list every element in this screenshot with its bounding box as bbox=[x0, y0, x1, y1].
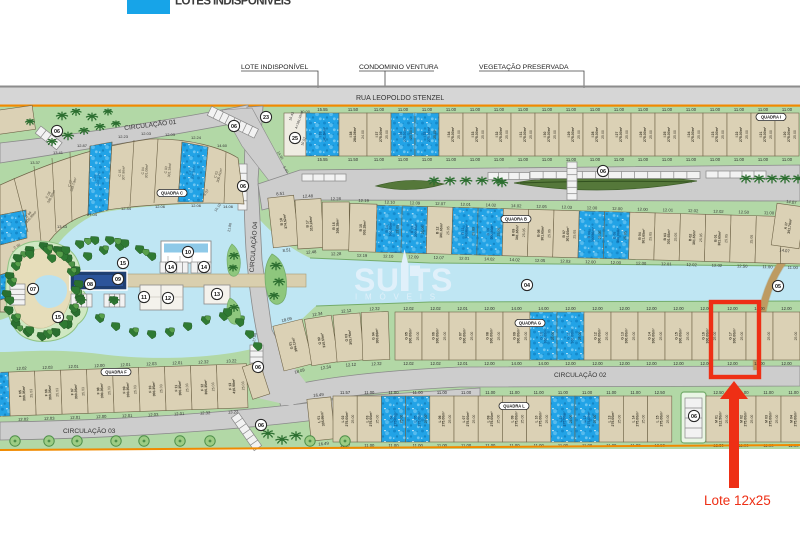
svg-text:25.05: 25.05 bbox=[446, 226, 450, 235]
svg-text:25.00: 25.00 bbox=[577, 130, 581, 139]
svg-text:CIRCULAÇÃO 03: CIRCULAÇÃO 03 bbox=[63, 426, 116, 435]
svg-text:12.02: 12.02 bbox=[18, 417, 29, 422]
svg-text:11.57: 11.57 bbox=[340, 390, 351, 395]
svg-text:11.00: 11.00 bbox=[374, 157, 385, 162]
svg-text:25.00: 25.00 bbox=[745, 130, 749, 139]
svg-text:11.00: 11.00 bbox=[788, 265, 799, 270]
svg-text:8.51: 8.51 bbox=[276, 190, 285, 196]
svg-text:25.03: 25.03 bbox=[55, 388, 59, 397]
svg-text:11.00: 11.00 bbox=[638, 107, 649, 112]
svg-text:11.00: 11.00 bbox=[606, 390, 617, 395]
svg-text:11.00: 11.00 bbox=[614, 157, 625, 162]
svg-text:12.00: 12.00 bbox=[781, 361, 792, 366]
svg-text:27.04: 27.04 bbox=[87, 212, 98, 217]
svg-text:12.50: 12.50 bbox=[738, 209, 749, 214]
svg-text:12.01: 12.01 bbox=[460, 202, 471, 207]
svg-text:25.00: 25.00 bbox=[433, 130, 437, 139]
svg-text:25.00: 25.00 bbox=[725, 415, 729, 424]
svg-text:12.32: 12.32 bbox=[369, 306, 380, 311]
svg-text:25: 25 bbox=[292, 136, 298, 142]
svg-text:25.00: 25.00 bbox=[740, 332, 744, 341]
svg-text:13.22: 13.22 bbox=[226, 358, 237, 363]
svg-text:12.00: 12.00 bbox=[673, 306, 684, 311]
svg-text:12.02: 12.02 bbox=[712, 263, 723, 268]
svg-text:11.00: 11.00 bbox=[485, 390, 496, 395]
svg-text:25.00: 25.00 bbox=[697, 130, 701, 139]
svg-text:QUADRA L: QUADRA L bbox=[503, 404, 525, 409]
svg-text:11.00: 11.00 bbox=[446, 157, 457, 162]
svg-text:12.28: 12.28 bbox=[331, 251, 342, 256]
svg-text:14.00: 14.00 bbox=[538, 306, 549, 311]
svg-text:11.00: 11.00 bbox=[758, 157, 769, 162]
svg-text:06: 06 bbox=[258, 423, 264, 429]
svg-text:13.37: 13.37 bbox=[30, 160, 41, 165]
svg-text:25.05: 25.05 bbox=[547, 229, 551, 238]
svg-text:14: 14 bbox=[168, 265, 174, 271]
svg-text:23: 23 bbox=[263, 115, 269, 121]
svg-text:25.03: 25.03 bbox=[133, 385, 137, 394]
svg-text:25.00: 25.00 bbox=[457, 130, 461, 139]
svg-text:11.00: 11.00 bbox=[686, 107, 697, 112]
svg-text:25.05: 25.05 bbox=[750, 235, 754, 244]
svg-text:25.00: 25.00 bbox=[673, 130, 677, 139]
svg-text:12.00: 12.00 bbox=[619, 361, 630, 366]
svg-text:13.43: 13.43 bbox=[57, 224, 68, 229]
svg-text:14.00: 14.00 bbox=[511, 361, 522, 366]
svg-text:06: 06 bbox=[54, 129, 60, 135]
svg-text:11.00: 11.00 bbox=[518, 157, 529, 162]
svg-text:12.00: 12.00 bbox=[727, 361, 738, 366]
svg-text:06: 06 bbox=[255, 365, 261, 371]
svg-text:12.48: 12.48 bbox=[302, 193, 313, 199]
svg-text:14.02: 14.02 bbox=[486, 202, 497, 207]
svg-text:11.00: 11.00 bbox=[782, 107, 793, 112]
svg-text:12.03: 12.03 bbox=[561, 205, 572, 210]
svg-text:12.00: 12.00 bbox=[610, 260, 621, 265]
svg-text:25.00: 25.00 bbox=[529, 130, 533, 139]
svg-text:12.00: 12.00 bbox=[484, 306, 495, 311]
svg-text:25.00: 25.00 bbox=[521, 415, 525, 424]
svg-text:12.01: 12.01 bbox=[663, 207, 674, 212]
svg-text:25.00: 25.00 bbox=[605, 332, 609, 341]
svg-text:25.00: 25.00 bbox=[666, 415, 670, 424]
svg-text:12.00: 12.00 bbox=[612, 206, 623, 211]
svg-text:11.00: 11.00 bbox=[413, 390, 424, 395]
svg-text:25.05: 25.05 bbox=[573, 230, 577, 239]
svg-text:25.00: 25.00 bbox=[443, 332, 447, 341]
svg-text:25.03: 25.03 bbox=[159, 384, 163, 393]
svg-text:13.41: 13.41 bbox=[53, 150, 64, 155]
svg-text:11.00: 11.00 bbox=[422, 107, 433, 112]
svg-text:12.00: 12.00 bbox=[619, 306, 630, 311]
svg-text:11.00: 11.00 bbox=[566, 107, 577, 112]
svg-text:11.00: 11.00 bbox=[662, 107, 673, 112]
svg-text:12.10: 12.10 bbox=[383, 254, 394, 259]
svg-text:06: 06 bbox=[691, 414, 697, 420]
svg-text:25.00: 25.00 bbox=[505, 130, 509, 139]
svg-text:25.00: 25.00 bbox=[767, 332, 771, 341]
svg-text:12.02: 12.02 bbox=[686, 262, 697, 267]
svg-text:11.00: 11.00 bbox=[758, 107, 769, 112]
svg-text:11.00: 11.00 bbox=[710, 107, 721, 112]
svg-text:11.00: 11.00 bbox=[494, 107, 505, 112]
svg-text:12.03: 12.03 bbox=[141, 131, 152, 136]
svg-text:12.03: 12.03 bbox=[146, 361, 157, 366]
svg-text:12.32: 12.32 bbox=[371, 361, 382, 366]
svg-text:11.00: 11.00 bbox=[422, 157, 433, 162]
svg-text:12.01: 12.01 bbox=[120, 362, 131, 367]
svg-text:25.05: 25.05 bbox=[395, 225, 399, 234]
svg-text:12.01: 12.01 bbox=[172, 360, 183, 365]
svg-text:QUADRA F: QUADRA F bbox=[105, 370, 127, 375]
svg-text:25.03: 25.03 bbox=[81, 387, 85, 396]
svg-text:25.00: 25.00 bbox=[601, 130, 605, 139]
svg-text:12.05: 12.05 bbox=[535, 258, 546, 263]
svg-text:11.50: 11.50 bbox=[348, 157, 359, 162]
svg-text:12: 12 bbox=[165, 296, 171, 302]
svg-text:12.03: 12.03 bbox=[165, 132, 176, 137]
svg-text:14.00: 14.00 bbox=[538, 361, 549, 366]
svg-text:12.01: 12.01 bbox=[661, 261, 672, 266]
svg-text:12.02: 12.02 bbox=[430, 306, 441, 311]
svg-text:11.00: 11.00 bbox=[582, 390, 593, 395]
svg-text:25.05: 25.05 bbox=[522, 228, 526, 237]
svg-text:11: 11 bbox=[141, 295, 147, 301]
svg-text:25.03: 25.03 bbox=[185, 383, 189, 392]
svg-text:11.00: 11.00 bbox=[590, 107, 601, 112]
svg-text:12.05: 12.05 bbox=[536, 204, 547, 209]
svg-text:25.03: 25.03 bbox=[241, 381, 245, 390]
svg-text:QUADRA C: QUADRA C bbox=[161, 191, 183, 196]
svg-text:12.03: 12.03 bbox=[44, 416, 55, 421]
svg-text:Lote 12x25: Lote 12x25 bbox=[704, 493, 771, 508]
svg-text:25.00: 25.00 bbox=[794, 332, 798, 341]
svg-text:12.00: 12.00 bbox=[646, 306, 657, 311]
svg-text:25.00: 25.00 bbox=[775, 415, 779, 424]
svg-text:11.00: 11.00 bbox=[762, 264, 773, 269]
svg-text:25.00: 25.00 bbox=[545, 415, 549, 424]
svg-text:12.03: 12.03 bbox=[560, 258, 571, 263]
svg-text:13.22: 13.22 bbox=[228, 409, 239, 414]
svg-text:25.05: 25.05 bbox=[623, 231, 627, 240]
svg-text:12.01: 12.01 bbox=[174, 411, 185, 416]
svg-text:11.00: 11.00 bbox=[590, 157, 601, 162]
svg-text:25.00: 25.00 bbox=[351, 415, 355, 424]
svg-text:12.19: 12.19 bbox=[358, 198, 369, 203]
svg-text:15.55: 15.55 bbox=[317, 107, 328, 112]
svg-text:25.00: 25.00 bbox=[472, 415, 476, 424]
svg-text:04: 04 bbox=[524, 283, 530, 289]
svg-text:12.06: 12.06 bbox=[155, 204, 166, 209]
svg-text:11.00: 11.00 bbox=[437, 390, 448, 395]
svg-text:12.00: 12.00 bbox=[565, 361, 576, 366]
svg-text:25.00: 25.00 bbox=[750, 415, 754, 424]
svg-text:11.00: 11.00 bbox=[470, 157, 481, 162]
svg-text:12.32: 12.32 bbox=[200, 410, 211, 415]
svg-text:12.87: 12.87 bbox=[77, 143, 88, 148]
svg-text:12.02: 12.02 bbox=[430, 361, 441, 366]
svg-text:11.00: 11.00 bbox=[638, 157, 649, 162]
svg-text:14.06: 14.06 bbox=[223, 204, 234, 209]
svg-text:25.00: 25.00 bbox=[642, 415, 646, 424]
svg-text:25.00: 25.00 bbox=[578, 332, 582, 341]
svg-text:25.00: 25.00 bbox=[375, 415, 379, 424]
svg-text:LOTES INDISPONÍVEIS: LOTES INDISPONÍVEIS bbox=[175, 0, 291, 8]
svg-text:VEGETAÇÃO PRESERVADA: VEGETAÇÃO PRESERVADA bbox=[479, 62, 569, 71]
svg-text:12.00: 12.00 bbox=[637, 207, 648, 212]
svg-text:25.00: 25.00 bbox=[721, 130, 725, 139]
svg-text:12.01: 12.01 bbox=[457, 306, 468, 311]
svg-text:06: 06 bbox=[240, 184, 246, 190]
svg-text:25.00: 25.00 bbox=[400, 415, 404, 424]
svg-text:QUADRA B: QUADRA B bbox=[505, 217, 527, 222]
svg-text:12.01: 12.01 bbox=[457, 361, 468, 366]
svg-text:25.05: 25.05 bbox=[648, 232, 652, 241]
svg-text:11.00: 11.00 bbox=[710, 157, 721, 162]
svg-text:12.09: 12.09 bbox=[408, 254, 419, 259]
svg-text:12.01: 12.01 bbox=[68, 364, 79, 369]
svg-text:12.01: 12.01 bbox=[122, 413, 133, 418]
svg-text:12.00: 12.00 bbox=[646, 361, 657, 366]
svg-text:25.00: 25.00 bbox=[524, 332, 528, 341]
svg-text:25.00: 25.00 bbox=[448, 415, 452, 424]
svg-text:25.00: 25.00 bbox=[617, 415, 621, 424]
svg-text:12.00: 12.00 bbox=[565, 306, 576, 311]
svg-text:12.02: 12.02 bbox=[688, 208, 699, 213]
svg-text:12.23: 12.23 bbox=[118, 134, 129, 139]
svg-text:14: 14 bbox=[201, 265, 207, 271]
svg-text:8.51: 8.51 bbox=[282, 247, 291, 253]
svg-text:11.00: 11.00 bbox=[542, 157, 553, 162]
svg-text:12.50: 12.50 bbox=[654, 390, 665, 395]
svg-text:11.00: 11.00 bbox=[494, 157, 505, 162]
svg-text:11.00: 11.00 bbox=[364, 390, 375, 395]
svg-text:25.00: 25.00 bbox=[713, 332, 717, 341]
svg-text:25.05: 25.05 bbox=[421, 225, 425, 234]
svg-text:25.00: 25.00 bbox=[416, 332, 420, 341]
svg-text:25.00: 25.00 bbox=[385, 130, 389, 139]
svg-text:15: 15 bbox=[120, 261, 126, 267]
svg-text:25.00: 25.00 bbox=[686, 332, 690, 341]
svg-text:11.00: 11.00 bbox=[630, 390, 641, 395]
svg-text:12.00: 12.00 bbox=[585, 259, 596, 264]
svg-text:15.55: 15.55 bbox=[317, 157, 328, 162]
svg-text:25.05: 25.05 bbox=[699, 233, 703, 242]
svg-text:12.48: 12.48 bbox=[306, 249, 317, 255]
svg-text:12.00: 12.00 bbox=[727, 306, 738, 311]
svg-text:25.00: 25.00 bbox=[793, 130, 797, 139]
svg-text:06: 06 bbox=[231, 124, 237, 130]
svg-text:08: 08 bbox=[87, 282, 93, 288]
svg-text:12.00: 12.00 bbox=[636, 261, 647, 266]
svg-text:LOTE INDISPONÍVEL: LOTE INDISPONÍVEL bbox=[241, 62, 308, 71]
svg-text:11.00: 11.00 bbox=[734, 107, 745, 112]
svg-text:09: 09 bbox=[115, 277, 121, 283]
svg-text:14.02: 14.02 bbox=[509, 257, 520, 262]
svg-text:25.05: 25.05 bbox=[497, 228, 501, 237]
svg-text:11.00: 11.00 bbox=[509, 390, 520, 395]
svg-text:12.10: 12.10 bbox=[384, 200, 395, 205]
svg-text:11.00: 11.00 bbox=[763, 390, 774, 395]
svg-text:25.05: 25.05 bbox=[674, 233, 678, 242]
svg-text:07: 07 bbox=[30, 287, 36, 293]
svg-text:25.00: 25.00 bbox=[593, 415, 597, 424]
svg-text:RUA LEOPOLDO STENZEL: RUA LEOPOLDO STENZEL bbox=[356, 95, 444, 102]
svg-text:11.50: 11.50 bbox=[348, 107, 359, 112]
svg-text:11.00: 11.00 bbox=[470, 107, 481, 112]
svg-text:12.00: 12.00 bbox=[781, 306, 792, 311]
svg-text:10.00: 10.00 bbox=[300, 109, 311, 114]
svg-text:25.00: 25.00 bbox=[569, 415, 573, 424]
svg-text:IMÓVEIS: IMÓVEIS bbox=[355, 293, 443, 302]
svg-text:12.00: 12.00 bbox=[587, 205, 598, 210]
svg-text:12.00: 12.00 bbox=[592, 306, 603, 311]
svg-text:12.12: 12.12 bbox=[345, 362, 357, 368]
svg-text:25.05: 25.05 bbox=[724, 234, 728, 243]
svg-text:25.05: 25.05 bbox=[471, 227, 475, 236]
svg-text:12.28: 12.28 bbox=[330, 196, 341, 201]
svg-text:12.07: 12.07 bbox=[433, 255, 444, 260]
svg-text:12.07: 12.07 bbox=[435, 201, 446, 206]
svg-text:12.00: 12.00 bbox=[94, 363, 105, 368]
svg-text:25.00: 25.00 bbox=[659, 332, 663, 341]
svg-text:12.02: 12.02 bbox=[403, 306, 414, 311]
svg-text:25.00: 25.00 bbox=[649, 130, 653, 139]
svg-text:25.00: 25.00 bbox=[769, 130, 773, 139]
svg-text:11.00: 11.00 bbox=[566, 157, 577, 162]
svg-text:11.00: 11.00 bbox=[662, 157, 673, 162]
svg-text:12.01: 12.01 bbox=[459, 256, 470, 261]
svg-text:11.00: 11.00 bbox=[446, 107, 457, 112]
svg-text:25.00: 25.00 bbox=[625, 130, 629, 139]
svg-text:14.00: 14.00 bbox=[511, 306, 522, 311]
svg-text:12.06: 12.06 bbox=[191, 203, 202, 208]
svg-text:12.00: 12.00 bbox=[484, 361, 495, 366]
svg-text:12.02: 12.02 bbox=[713, 209, 724, 214]
svg-text:14.02: 14.02 bbox=[484, 256, 495, 261]
svg-text:12.50: 12.50 bbox=[713, 390, 724, 395]
svg-text:QUADRA G: QUADRA G bbox=[519, 321, 541, 326]
svg-text:QUADRA I: QUADRA I bbox=[761, 115, 781, 120]
svg-text:25.03: 25.03 bbox=[107, 386, 111, 395]
svg-text:CIRCULAÇÃO 02: CIRCULAÇÃO 02 bbox=[554, 370, 607, 379]
svg-text:12.12: 12.12 bbox=[341, 308, 353, 314]
svg-text:25.03: 25.03 bbox=[29, 389, 33, 398]
svg-text:15: 15 bbox=[55, 315, 61, 321]
svg-text:25.03: 25.03 bbox=[211, 382, 215, 391]
svg-text:14.60: 14.60 bbox=[217, 143, 228, 148]
svg-text:13: 13 bbox=[214, 292, 220, 298]
svg-text:25.00: 25.00 bbox=[632, 332, 636, 341]
svg-text:25.05: 25.05 bbox=[598, 230, 602, 239]
svg-text:11.00: 11.00 bbox=[788, 390, 799, 395]
svg-text:11.00: 11.00 bbox=[542, 107, 553, 112]
svg-text:12.00: 12.00 bbox=[592, 361, 603, 366]
svg-text:12.19: 12.19 bbox=[357, 253, 368, 258]
svg-text:25.00: 25.00 bbox=[481, 130, 485, 139]
svg-text:25.00: 25.00 bbox=[470, 332, 474, 341]
svg-text:12.50: 12.50 bbox=[737, 263, 748, 268]
svg-text:11.00: 11.00 bbox=[782, 157, 793, 162]
svg-text:10: 10 bbox=[185, 250, 191, 256]
svg-text:25.00: 25.00 bbox=[553, 130, 557, 139]
svg-text:25.00: 25.00 bbox=[497, 332, 501, 341]
svg-text:12.09: 12.09 bbox=[410, 200, 421, 205]
svg-text:24.00: 24.00 bbox=[361, 130, 365, 139]
svg-text:11.00: 11.00 bbox=[534, 390, 545, 395]
svg-text:12.03: 12.03 bbox=[148, 412, 159, 417]
svg-text:25.00: 25.00 bbox=[496, 415, 500, 424]
svg-text:11.00: 11.00 bbox=[518, 107, 529, 112]
svg-text:11.00: 11.00 bbox=[764, 210, 775, 215]
svg-text:11.00: 11.00 bbox=[734, 157, 745, 162]
svg-text:05: 05 bbox=[775, 284, 781, 290]
svg-text:25.00: 25.00 bbox=[424, 415, 428, 424]
svg-text:11.00: 11.00 bbox=[374, 107, 385, 112]
svg-text:14.02: 14.02 bbox=[511, 203, 522, 208]
svg-text:12.32: 12.32 bbox=[198, 359, 209, 364]
svg-text:11.00: 11.00 bbox=[461, 390, 472, 395]
svg-text:12.03: 12.03 bbox=[42, 365, 53, 370]
svg-text:25.00: 25.00 bbox=[409, 130, 413, 139]
svg-text:12.00: 12.00 bbox=[96, 414, 107, 419]
svg-text:06: 06 bbox=[600, 169, 606, 175]
svg-text:12.00: 12.00 bbox=[673, 361, 684, 366]
svg-text:11.00: 11.00 bbox=[388, 390, 399, 395]
svg-text:11.00: 11.00 bbox=[614, 107, 625, 112]
svg-text:11.00: 11.00 bbox=[686, 157, 697, 162]
svg-text:12.44: 12.44 bbox=[121, 206, 132, 211]
svg-text:25.00: 25.00 bbox=[551, 332, 555, 341]
svg-text:11.00: 11.00 bbox=[398, 107, 409, 112]
svg-text:12.01: 12.01 bbox=[70, 415, 81, 420]
svg-text:12.02: 12.02 bbox=[16, 366, 27, 371]
svg-text:11.00: 11.00 bbox=[558, 390, 569, 395]
svg-text:CONDOMINIO VENTURA: CONDOMINIO VENTURA bbox=[359, 64, 439, 71]
svg-text:12.02: 12.02 bbox=[403, 361, 414, 366]
svg-text:12.24: 12.24 bbox=[191, 135, 202, 140]
svg-text:11.00: 11.00 bbox=[398, 157, 409, 162]
